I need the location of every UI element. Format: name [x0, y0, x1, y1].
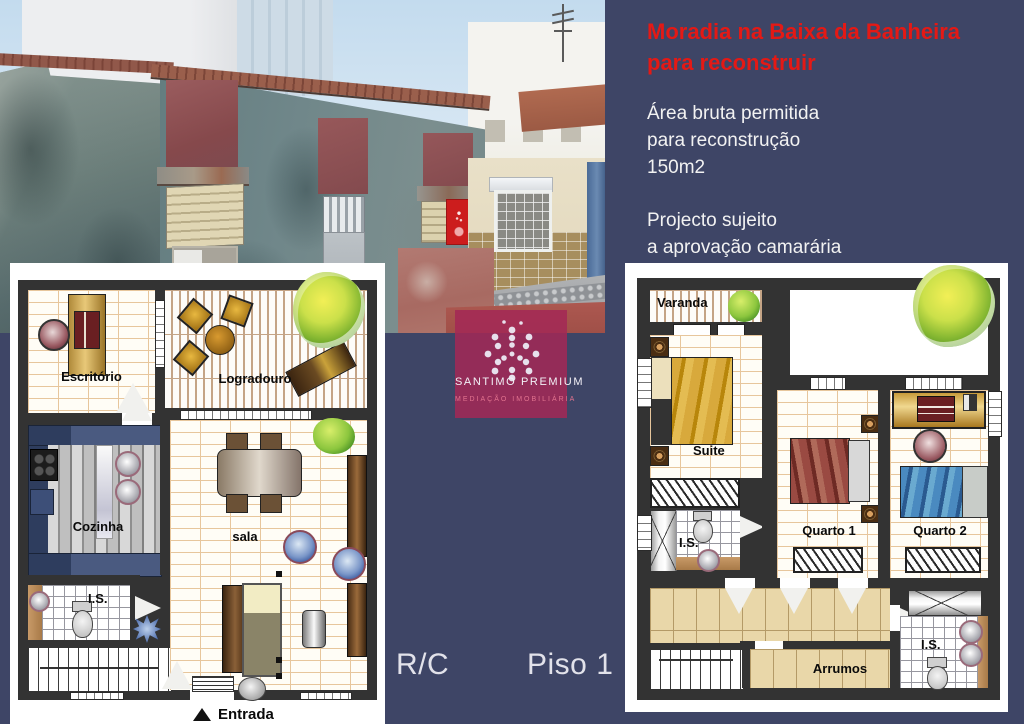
note-line1: Projecto sujeito	[647, 207, 1007, 234]
rc-window-bottom-right	[300, 692, 352, 700]
living-dot-3	[276, 657, 282, 663]
bedroom1-bed	[790, 438, 850, 504]
wc-toilet	[72, 610, 93, 638]
wc-bottom-wall	[28, 640, 140, 647]
kitchen-sink-2	[115, 479, 141, 505]
armchair-2	[332, 547, 366, 581]
wc-top-right-wall	[740, 504, 750, 578]
kitchen-counter-bottom	[28, 553, 162, 577]
wc-top-label: I.S.	[679, 535, 699, 550]
bedroom1-label: Quarto 1	[785, 523, 873, 538]
agency-logo: SANTIMO PREMIUM MEDIAÇÃO IMOBILIÁRIA	[455, 310, 567, 418]
suite-label: Suite	[693, 443, 725, 458]
storage-door-gap	[755, 641, 783, 649]
armchair-1	[283, 530, 317, 564]
bedroom1-fan-bottom	[861, 505, 879, 523]
p1-window-right-bedroom2	[988, 391, 1002, 437]
p1-window-left-suite	[637, 358, 652, 408]
patio-label: Logradouro	[200, 371, 310, 386]
page-title-line2: para reconstruir	[647, 47, 1007, 78]
sofa-back	[222, 585, 244, 673]
office-desk-top	[74, 311, 100, 349]
header-text: Moradia na Baixa da Banheira para recons…	[647, 16, 1007, 261]
wc-top-sink	[697, 549, 720, 572]
entrance-arrow-icon	[193, 708, 211, 721]
floorplan-rc: Escritório Logradouro Cozinha	[10, 263, 385, 724]
bedroom2-label: Quarto 2	[895, 523, 985, 538]
wc-bottom-sink-1	[959, 620, 983, 644]
wc-top-shower	[650, 510, 678, 572]
office-patio-window	[155, 300, 165, 368]
kitchen-living-wall	[160, 420, 170, 575]
p1-stairs	[650, 649, 744, 690]
p1-stairs-rail	[659, 659, 733, 661]
rc-stairs	[28, 647, 172, 692]
bedroom2-shelf-icon	[963, 394, 977, 411]
logo-name: SANTIMO PREMIUM	[455, 376, 567, 388]
living-label: sala	[215, 529, 275, 544]
dining-table	[217, 449, 302, 497]
office-chair	[38, 319, 70, 351]
bedroom1-pillow	[848, 440, 870, 502]
wc-bottom-sink-2	[959, 643, 983, 667]
suite-wardrobe-bottom	[650, 446, 669, 466]
entrance-label: Entrada	[218, 706, 274, 723]
caption-rc: R/C	[396, 648, 449, 682]
suite-bed	[671, 357, 733, 445]
living-dot-1	[276, 571, 282, 577]
info-line-area3: 150m2	[647, 154, 1007, 181]
corridor-door-gap-3	[838, 578, 868, 588]
window1-shutter	[166, 183, 244, 249]
wc-bottom-shower	[908, 590, 982, 616]
patio-living-window	[180, 410, 312, 420]
corridor-top-wall	[650, 578, 988, 588]
wall-patch-2	[318, 118, 368, 194]
suite-closet	[650, 478, 740, 508]
note-line2: a aprovação camarária	[647, 234, 1007, 261]
door-transom	[323, 196, 365, 234]
caption-piso1: Piso 1	[527, 648, 613, 682]
kitchen-sink-1	[115, 451, 141, 477]
bedroom1-fan-top	[861, 415, 879, 433]
p1-mid-wall-top	[762, 290, 790, 375]
bedroom2-radiator	[905, 547, 981, 573]
tv-unit-2	[347, 583, 367, 657]
terrace-window-2	[905, 377, 963, 390]
info-line-area1: Área bruta permitida	[647, 100, 1007, 127]
rc-window-bottom-left	[70, 692, 124, 700]
patio-table	[205, 325, 235, 355]
balcony-plant	[728, 290, 760, 322]
corridor-door-gap-2	[780, 578, 810, 588]
kitchen-wc-wall	[28, 575, 140, 585]
side-cylinder	[302, 610, 326, 648]
wc-bottom-label: I.S.	[921, 637, 941, 652]
wc-bottom-door-gap	[890, 605, 900, 631]
wc-label: I.S.	[88, 591, 108, 606]
office-label: Escritório	[30, 369, 153, 384]
tv-unit-1	[347, 455, 367, 557]
blue-tarp	[587, 162, 605, 292]
wc-sink	[29, 591, 50, 612]
suite-bedroom1-wall	[762, 375, 777, 585]
logo-tagline: MEDIAÇÃO IMOBILIÁRIA	[455, 396, 567, 403]
kitchen-cabinet	[30, 489, 54, 515]
kitchen-stove	[30, 449, 58, 481]
antenna-icon	[552, 4, 574, 62]
dining-chair-3	[226, 494, 248, 513]
balcony-label: Varanda	[657, 295, 708, 310]
bedroom2-bed	[900, 466, 964, 518]
living-fern	[313, 418, 355, 454]
building-right-roof	[518, 84, 605, 132]
wc-bottom-left-wall	[890, 588, 900, 688]
page-title-line1: Moradia na Baixa da Banheira	[647, 16, 1007, 47]
wc-bottom-toilet	[927, 666, 948, 690]
slide: Moradia na Baixa da Banheira para recons…	[0, 0, 1024, 724]
rc-stairs-rail	[40, 667, 158, 669]
stairs-storage-wall	[742, 649, 750, 688]
floorplan-piso1: Varanda Suite I.S.	[625, 263, 1008, 712]
entrance-steps	[192, 676, 234, 692]
kitchen-label: Cozinha	[40, 519, 156, 534]
neighbour-window-grille	[494, 190, 552, 252]
dining-chair-4	[260, 494, 282, 513]
kitchen-counter-top	[28, 425, 162, 447]
p1-window-left-wc	[637, 515, 652, 551]
corridor-door-gap-1	[725, 578, 755, 588]
info-line-area2: para reconstrução	[647, 127, 1007, 154]
storage-label: Arrumos	[785, 661, 895, 676]
terrace-window-1	[810, 377, 846, 390]
bedroom2-pillow	[962, 466, 988, 518]
bedroom1-bedroom2-wall	[878, 375, 890, 585]
pouf	[238, 677, 266, 701]
suite-wardrobe-top	[650, 337, 669, 357]
suite-bed-pillows	[651, 357, 673, 445]
living-dot-4	[276, 673, 282, 679]
bedroom2-computer	[917, 396, 955, 422]
bedroom1-radiator	[793, 547, 863, 573]
wall-patch-1	[166, 80, 238, 176]
